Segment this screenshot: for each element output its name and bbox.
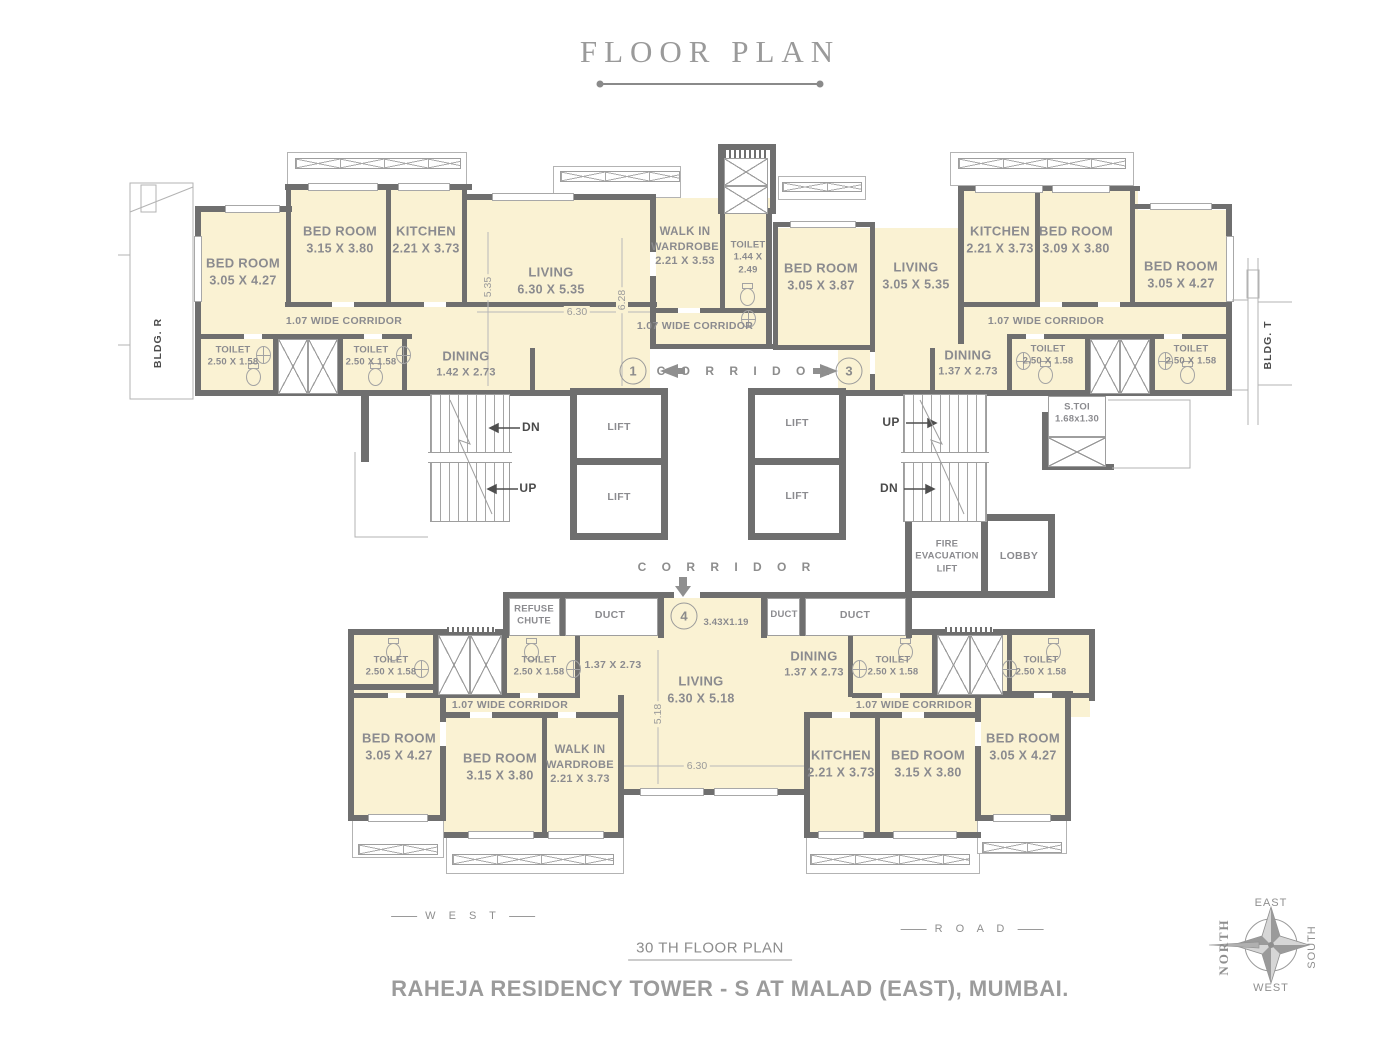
room-label-bedroom: BED ROOM3.05 X 3.87 — [784, 260, 858, 293]
shaft — [438, 635, 470, 695]
corridor-width-label: 1.07 WIDE CORRIDOR — [856, 699, 972, 713]
stair-up-label: UP — [519, 481, 536, 497]
entry-dim-label: 3.43X1.19 — [703, 617, 748, 629]
balcony-railing — [295, 158, 461, 169]
balcony-railing — [782, 182, 862, 192]
room-label-living: LIVING6.30 X 5.18 — [667, 673, 734, 706]
compass-east-label: EAST — [1255, 897, 1288, 909]
linework-overlay — [0, 0, 1400, 1050]
unit-number-badge: 4 — [671, 603, 698, 630]
shaft — [724, 186, 768, 214]
unit-number-badge: 3 — [836, 358, 863, 385]
project-title: RAHEJA RESIDENCY TOWER - S AT MALAD (EAS… — [391, 976, 1069, 1002]
room-label-toilet: TOILET2.50 X 1.58 — [366, 655, 417, 680]
refuse-chute-label: REFUSECHUTE — [514, 604, 554, 629]
room-label-kitchen: KITCHEN2.21 X 3.73 — [392, 223, 459, 256]
stair-dn-label: DN — [522, 420, 540, 436]
unit-number-badge: 1 — [620, 358, 647, 385]
room-label-toilet: TOILET2.50 X 1.58 — [1016, 655, 1067, 680]
page-title: FLOOR PLAN — [580, 34, 840, 70]
stair-up-label: UP — [882, 415, 899, 431]
room-label-toilet: TOILET1.44 X2.49 — [731, 239, 766, 276]
room-label-toilet: TOILET2.50 X 1.58 — [346, 345, 397, 370]
compass-north-label: NORTH — [1216, 918, 1232, 975]
room-label-toilet: TOILET2.50 X 1.58 — [208, 345, 259, 370]
lift-label: LIFT — [607, 491, 630, 505]
vent-hatch — [447, 627, 495, 632]
dim-label: 5.18 — [652, 701, 664, 727]
room-label-dining: DINING1.42 X 2.73 — [436, 348, 496, 379]
stair-dn-label: DN — [880, 481, 898, 497]
room-label-wardrobe: WALK INWARDROBE2.21 X 3.53 — [651, 225, 719, 269]
balcony-railing — [958, 158, 1126, 169]
room-label-bedroom: BED ROOM3.05 X 4.27 — [1144, 258, 1218, 291]
shaft — [1090, 339, 1120, 394]
room-label-bedroom: BED ROOM3.05 X 4.27 — [206, 255, 280, 288]
stair-landing — [901, 452, 989, 463]
stair-landing — [428, 452, 512, 463]
corridor-width-label: 1.07 WIDE CORRIDOR — [637, 320, 753, 334]
lift-label: LIFT — [785, 417, 808, 431]
corridor-width-label: 1.07 WIDE CORRIDOR — [452, 699, 568, 713]
stair-arrows — [488, 419, 936, 493]
room-label-dining: DINING1.37 X 2.73 — [938, 347, 998, 378]
room-label-kitchen: KITCHEN2.21 X 3.73 — [966, 223, 1033, 256]
title-rule — [597, 81, 824, 88]
room-label-toilet: TOILET2.50 X 1.58 — [1166, 344, 1217, 369]
shaft — [970, 635, 1003, 695]
corridor-width-label: 1.07 WIDE CORRIDOR — [286, 315, 402, 329]
room-label-bedroom: BED ROOM3.15 X 3.80 — [463, 750, 537, 783]
fire-lift-label: FIREEVACUATIONLIFT — [915, 538, 978, 575]
vent-hatch — [724, 150, 768, 158]
corridor-width-label: 1.07 WIDE CORRIDOR — [988, 315, 1104, 329]
room-label-living: LIVING6.30 X 5.35 — [517, 264, 584, 297]
shaft — [1048, 437, 1106, 467]
room-label-bedroom: BED ROOM3.15 X 3.80 — [303, 223, 377, 256]
room-label-bedroom: BED ROOM3.09 X 3.80 — [1039, 223, 1113, 256]
balcony-railing — [810, 854, 970, 865]
room-label-living: LIVING3.05 X 5.35 — [882, 259, 949, 292]
compass-west-label: WEST — [1253, 982, 1289, 994]
room-label-bedroom: BED ROOM3.15 X 3.80 — [891, 747, 965, 780]
duct-label: DUCT — [595, 609, 625, 623]
room-label-toilet: TOILET2.50 X 1.58 — [1023, 344, 1074, 369]
arrow-down-icon — [675, 586, 691, 597]
road-label: R O A D — [901, 923, 1044, 935]
floor-number-label: 30 TH FLOOR PLAN — [628, 940, 792, 961]
shaft — [937, 635, 970, 695]
vent-hatch — [945, 627, 993, 632]
dim-label: 6.30 — [684, 760, 710, 772]
room-label-wardrobe: WALK INWARDROBE2.21 X 3.73 — [546, 743, 614, 787]
shaft — [278, 339, 308, 394]
lift-label: LIFT — [607, 421, 630, 435]
staff-toilet-label: S.TOI1.68x1.30 — [1055, 402, 1099, 427]
compass-south-label: SOUTH — [1306, 925, 1318, 969]
dim-label: 1.37 X 2.73 — [584, 659, 641, 673]
balcony-railing — [982, 842, 1062, 853]
dim-label: 5.35 — [482, 274, 494, 300]
balcony-railing — [560, 171, 680, 182]
corridor-label: C O R R I D O R — [638, 560, 817, 574]
dim-label: 6.30 — [564, 306, 590, 318]
balcony-railing — [452, 854, 614, 865]
adjacent-building-label: BLDG. R — [152, 318, 164, 368]
shaft — [724, 158, 768, 186]
room-label-bedroom: BED ROOM3.05 X 4.27 — [986, 730, 1060, 763]
shaft — [308, 339, 338, 394]
shaft — [470, 635, 502, 695]
room-label-dining: DINING1.37 X 2.73 — [784, 648, 844, 679]
room-area — [620, 640, 805, 795]
lift-label: LIFT — [785, 490, 808, 504]
floor-plan-canvas: FLOOR PLAN — [0, 0, 1400, 1050]
dim-label: 6.28 — [616, 287, 628, 313]
corridor-label: C O R R I D O R — [657, 364, 836, 378]
lobby-label: LOBBY — [1000, 550, 1038, 564]
shaft — [1120, 339, 1150, 394]
room-label-kitchen: KITCHEN2.21 X 3.73 — [807, 747, 874, 780]
duct-label: DUCT — [840, 609, 870, 623]
adjacent-building-label: BLDG. T — [1262, 321, 1274, 370]
balcony-railing — [358, 844, 438, 855]
room-label-toilet: TOILET2.50 X 1.58 — [514, 655, 565, 680]
duct-label: DUCT — [770, 609, 797, 621]
room-label-toilet: TOILET2.50 X 1.58 — [868, 655, 919, 680]
room-label-bedroom: BED ROOM3.05 X 4.27 — [362, 730, 436, 763]
direction-west-label: W E S T — [391, 910, 535, 922]
